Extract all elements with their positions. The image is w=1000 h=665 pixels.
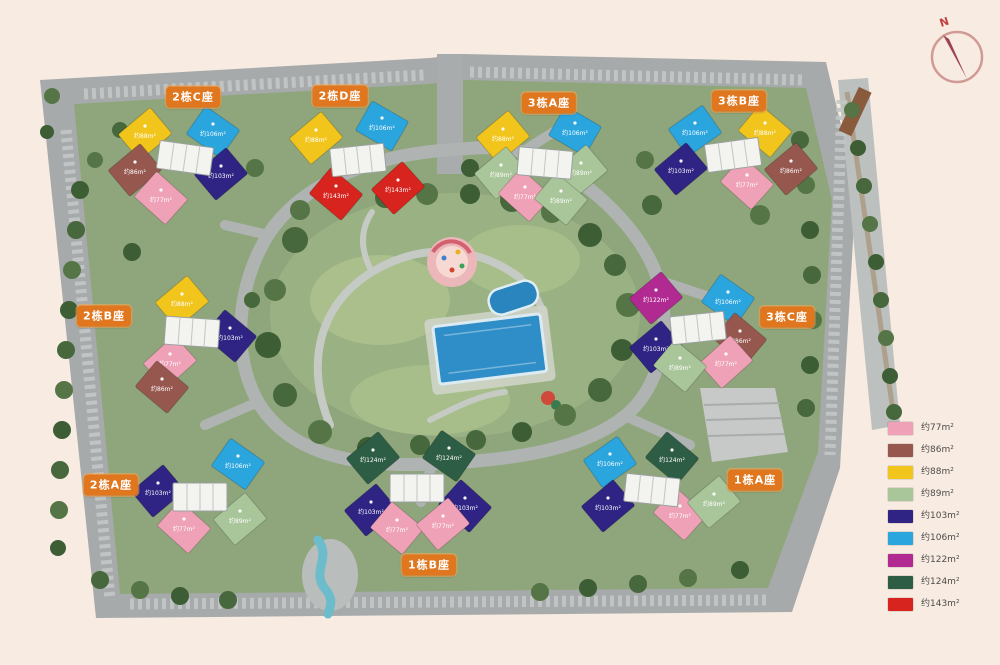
tree-icon [57,341,75,359]
tree-icon [282,227,308,253]
tree-icon [797,399,815,417]
tree-icon [868,254,884,270]
unit-area-label: 约77m² [173,525,195,533]
tree-icon [50,501,68,519]
building-label-badge: 2栋A座 [84,475,138,496]
building-label-badge: 2栋D座 [313,86,368,107]
tree-icon [50,540,66,556]
unit-area-label: 约89m² [229,517,251,525]
tree-icon [801,356,819,374]
unit-area-label: 约88m² [492,135,514,143]
unit-area-label: 约77m² [514,193,536,201]
tree-icon [611,339,633,361]
legend-item: 约86m² [888,444,960,457]
tree-icon [642,195,662,215]
tree-icon [629,575,647,593]
building-footprint [624,473,681,506]
unit-area-label: 约122m² [643,296,669,304]
legend-item: 约124m² [888,576,960,589]
unit-area-label: 约103m² [217,334,243,342]
building-label-badge: 3栋A座 [522,93,576,114]
legend: 约77m²约86m²约88m²约89m²约103m²约106m²约122m²约1… [888,422,960,611]
building-label-badge: 1栋B座 [402,555,456,576]
legend-swatch-pink [888,422,913,435]
unit-area-label: 约106m² [562,129,588,137]
legend-swatch-sage [888,488,913,501]
tree-icon [886,404,902,420]
unit-area-label: 约77m² [715,360,737,368]
unit-area-label: 约124m² [360,456,386,464]
site-plan-page: 约88m²约106m²约86m²约77m²约103m²约88m²约106m²约1… [0,0,1000,665]
legend-swatch-lightblue [888,532,913,545]
unit-area-label: 约103m² [595,504,621,512]
tree-icon [60,301,78,319]
building-footprint [390,474,444,502]
building-label-badge: 2栋C座 [166,87,220,108]
unit-area-label: 约77m² [386,526,408,534]
legend-label: 约89m² [921,488,954,501]
unit-area-label: 约86m² [780,167,802,175]
tree-icon [244,292,260,308]
unit-area-label: 约106m² [225,462,251,470]
unit-area-label: 约89m² [550,197,572,205]
tree-icon [460,184,480,204]
tree-icon [604,254,626,276]
tree-icon [878,330,894,346]
unit-area-label: 约103m² [668,167,694,175]
legend-label: 约88m² [921,466,954,479]
legend-swatch-red [888,598,913,611]
tree-icon [856,178,872,194]
tree-icon [679,569,697,587]
building-footprint [173,483,227,511]
legend-swatch-magenta [888,554,913,567]
unit-area-label: 约77m² [150,196,172,204]
tree-icon [87,152,103,168]
legend-label: 约86m² [921,444,954,457]
tree-icon [171,587,189,605]
tree-icon [850,140,866,156]
unit-area-label: 约106m² [200,130,226,138]
unit-area-label: 约124m² [659,456,685,464]
unit-area-label: 约106m² [682,129,708,137]
tree-icon [71,181,89,199]
unit-area-label: 约77m² [669,512,691,520]
legend-label: 约106m² [921,532,960,545]
unit-area-label: 约106m² [597,460,623,468]
tree-icon [308,420,332,444]
unit-area-label: 约143m² [323,192,349,200]
tree-icon [273,383,297,407]
legend-item: 约89m² [888,488,960,501]
legend-swatch-navy [888,510,913,523]
legend-label: 约124m² [921,576,960,589]
legend-item: 约88m² [888,466,960,479]
tree-icon [579,579,597,597]
unit-area-label: 约106m² [369,124,395,132]
tree-icon [40,125,54,139]
building-label-badge: 2栋B座 [77,306,131,327]
tree-icon [255,332,281,358]
unit-area-label: 约103m² [208,172,234,180]
tree-icon [873,292,889,308]
tree-icon [882,368,898,384]
legend-label: 约103m² [921,510,960,523]
legend-label: 约122m² [921,554,960,567]
legend-swatch-darkgreen [888,576,913,589]
legend-label: 约143m² [921,598,960,611]
tree-icon [63,261,81,279]
unit-area-label: 约89m² [570,169,592,177]
legend-item: 约77m² [888,422,960,435]
tree-icon [246,159,264,177]
pool-deck [424,305,556,396]
building-label-badge: 1栋A座 [728,470,782,491]
unit-area-label: 约86m² [151,385,173,393]
tree-icon [466,430,486,450]
site-plan-svg: 约88m²约106m²约86m²约77m²约103m²约88m²约106m²约1… [0,0,1000,665]
building-footprint [164,316,220,348]
tree-icon [290,200,310,220]
playground [427,237,477,287]
unit-area-label: 约89m² [703,500,725,508]
tree-icon [264,279,286,301]
legend-swatch-brown [888,444,913,457]
tree-icon [123,243,141,261]
building-footprint [670,311,727,344]
tree-icon [862,216,878,232]
building-label-badge: 3栋C座 [760,307,814,328]
tree-icon [55,381,73,399]
tree-icon [91,571,109,589]
north-label: N [938,15,951,30]
unit-area-label: 约88m² [305,136,327,144]
unit-area-label: 约86m² [124,168,146,176]
tree-icon [801,221,819,239]
building-footprint [330,143,387,176]
building-label-badge: 3栋B座 [712,91,766,112]
tree-icon [531,583,549,601]
compass: N [915,5,995,99]
legend-item: 约122m² [888,554,960,567]
legend-item: 约103m² [888,510,960,523]
tree-icon [512,422,532,442]
tree-icon [731,561,749,579]
legend-item: 约143m² [888,598,960,611]
tree-icon [44,88,60,104]
unit-area-label: 约89m² [669,364,691,372]
unit-area-label: 约89m² [490,171,512,179]
tree-icon [803,266,821,284]
tree-icon [844,102,860,118]
tree-icon [219,591,237,609]
tree-icon [578,223,602,247]
unit-area-label: 约124m² [436,454,462,462]
tree-icon [53,421,71,439]
legend-label: 约77m² [921,422,954,435]
unit-area-label: 约88m² [134,132,156,140]
tree-icon [588,378,612,402]
unit-area-label: 约106m² [715,298,741,306]
tree-icon [51,461,69,479]
legend-swatch-yellow [888,466,913,479]
compass-needle-icon [943,35,967,79]
unit-area-label: 约77m² [432,522,454,530]
unit-area-label: 约88m² [171,300,193,308]
building-footprint [517,147,573,180]
tree-icon [131,581,149,599]
tree-icon [636,151,654,169]
tree-icon [67,221,85,239]
unit-area-label: 约103m² [145,489,171,497]
unit-area-label: 约88m² [754,129,776,137]
unit-area-label: 约77m² [736,181,758,189]
legend-item: 约106m² [888,532,960,545]
unit-area-label: 约143m² [385,186,411,194]
tree-icon [554,404,576,426]
plaza-steps [700,388,788,462]
